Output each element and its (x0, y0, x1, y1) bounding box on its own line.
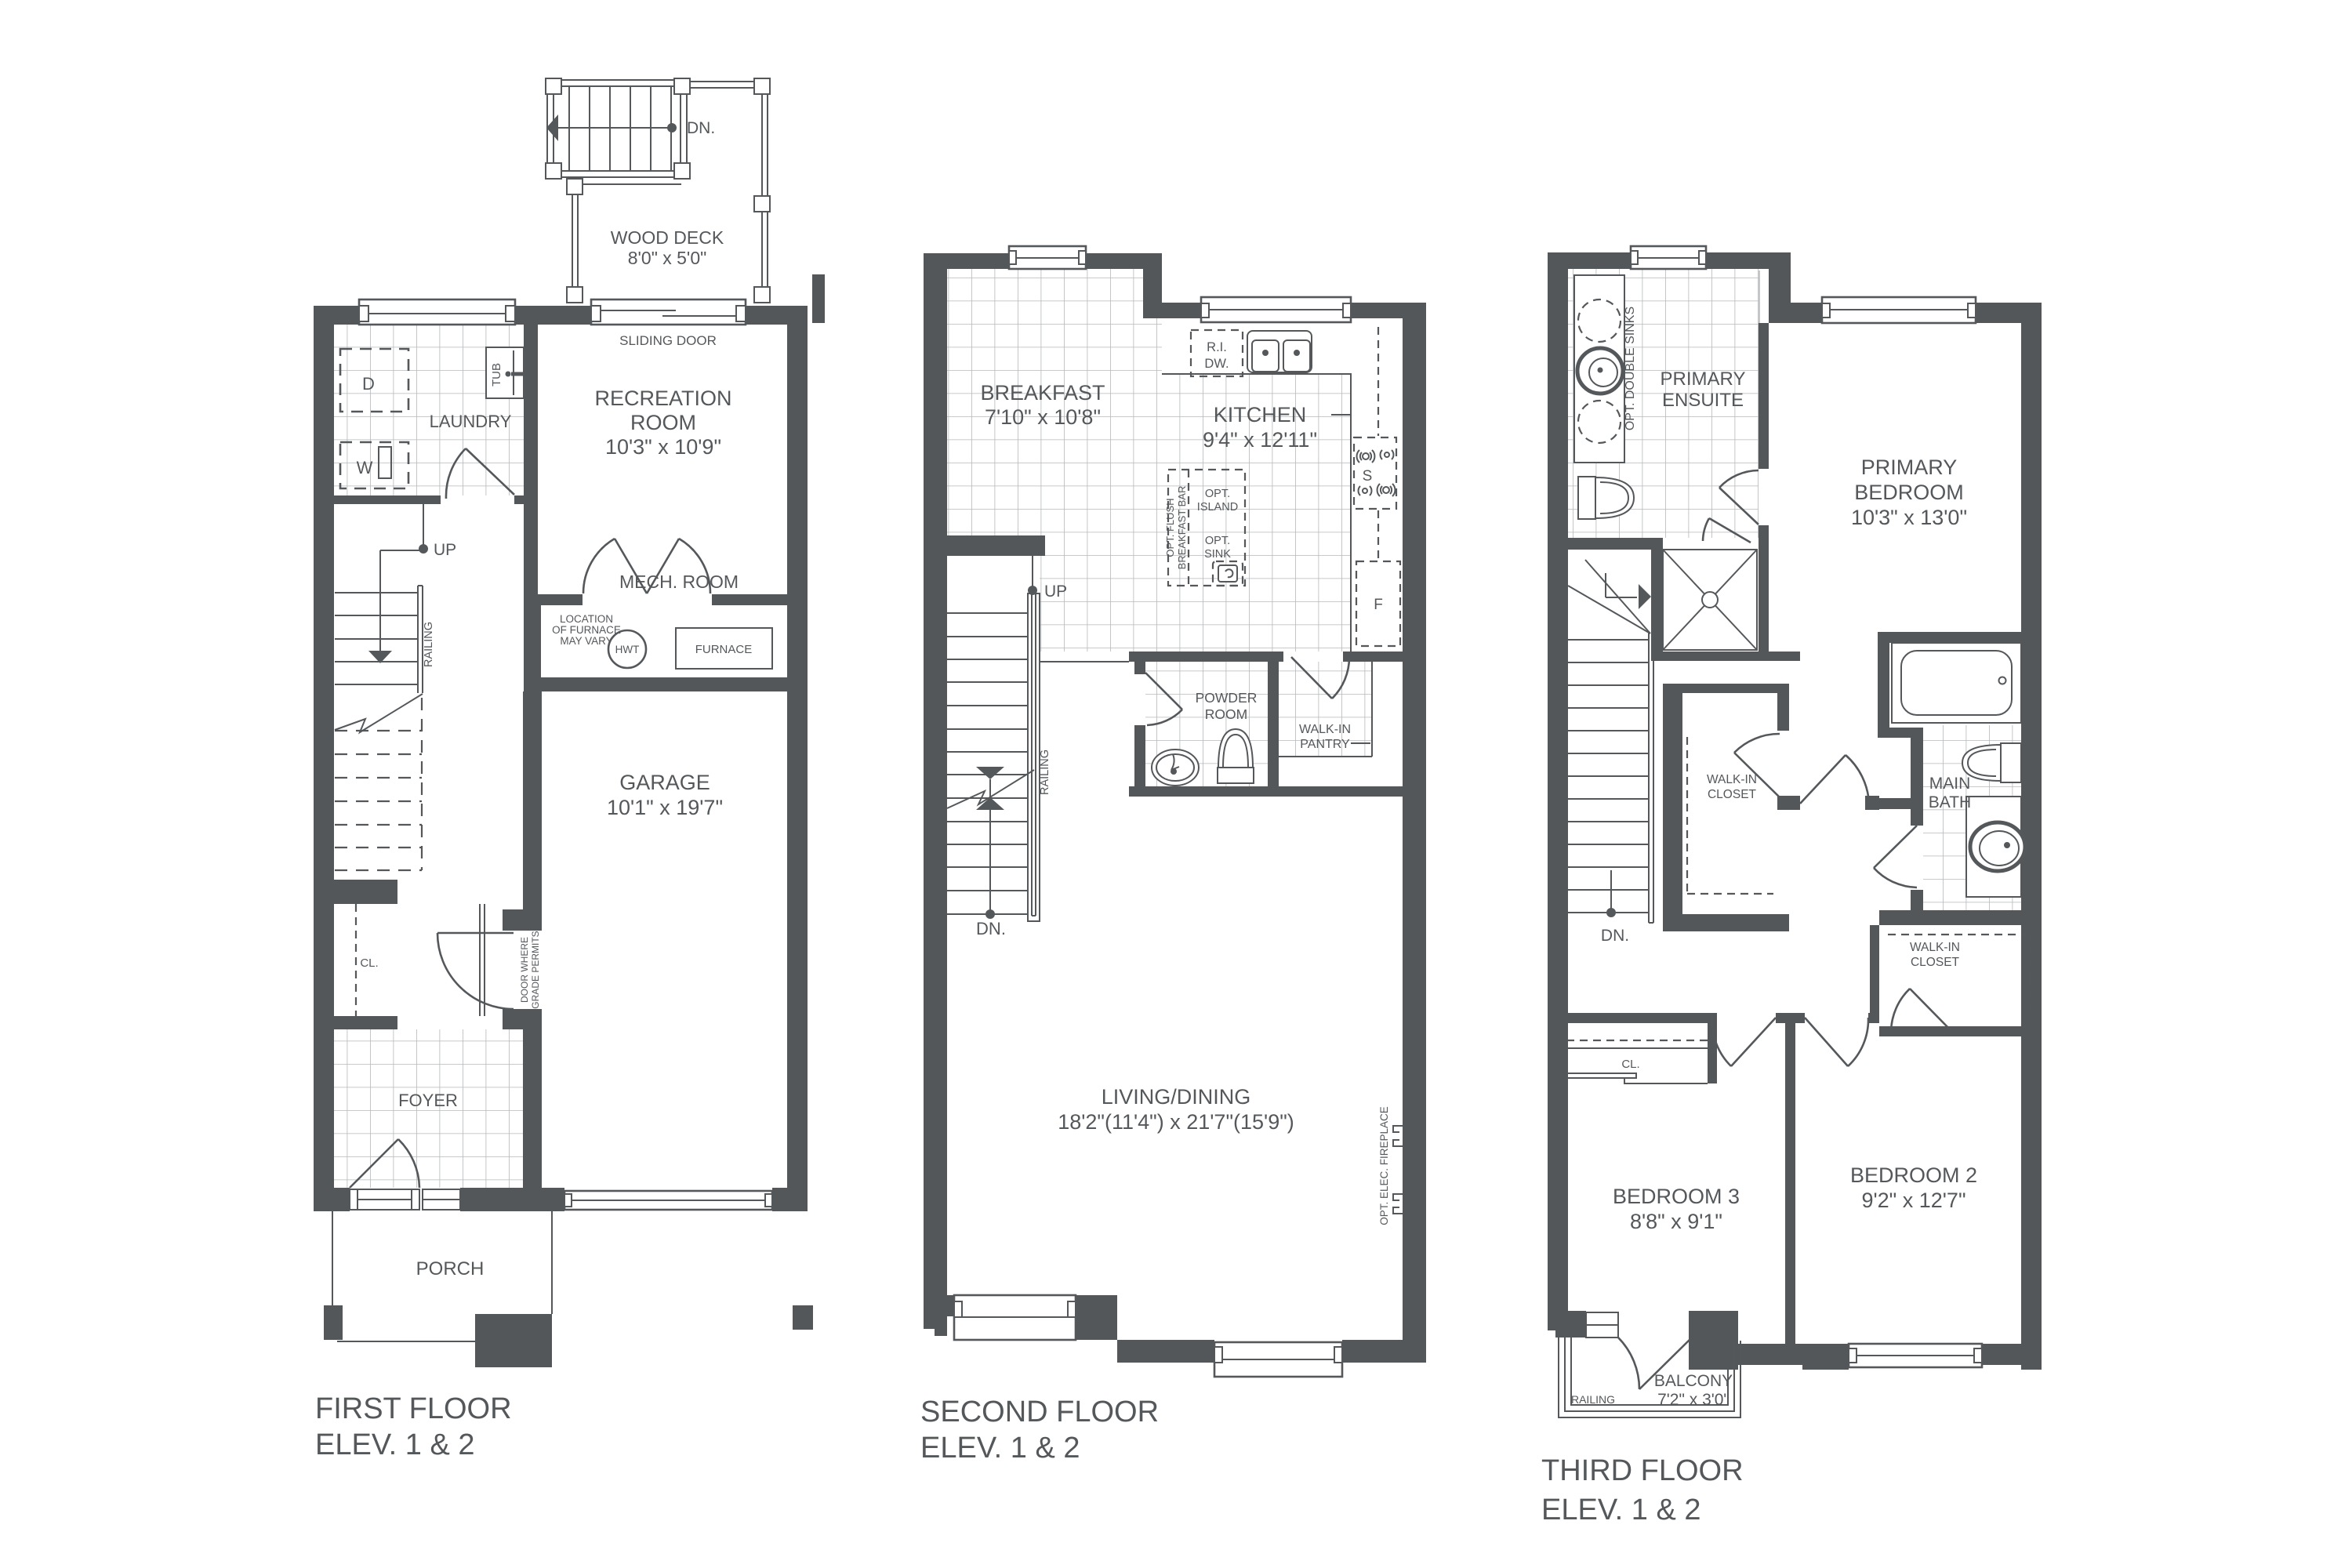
svg-text:CLOSET: CLOSET (1911, 956, 1960, 969)
svg-text:9'4" x 12'11": 9'4" x 12'11" (1203, 428, 1317, 452)
svg-text:OPT. FLUSH: OPT. FLUSH (1164, 498, 1176, 557)
svg-text:ROOM: ROOM (630, 411, 696, 434)
svg-text:LAUNDRY: LAUNDRY (430, 412, 512, 431)
svg-text:OPT.: OPT. (1205, 488, 1230, 500)
svg-text:RAILING: RAILING (423, 622, 435, 667)
svg-text:BALCONY: BALCONY (1654, 1372, 1733, 1390)
svg-text:OF FURNACE: OF FURNACE (552, 624, 621, 636)
svg-text:8'0" x 5'0": 8'0" x 5'0" (628, 248, 707, 268)
svg-text:W: W (357, 458, 373, 477)
svg-text:R.I.: R.I. (1207, 340, 1227, 354)
svg-text:LOCATION: LOCATION (560, 613, 613, 625)
svg-text:ELEV. 1 & 2: ELEV. 1 & 2 (920, 1432, 1080, 1465)
svg-text:RECREATION: RECREATION (594, 387, 731, 410)
svg-text:7'10" x 10'8": 7'10" x 10'8" (985, 405, 1101, 429)
svg-text:WALK-IN: WALK-IN (1299, 723, 1351, 736)
svg-text:PRIMARY: PRIMARY (1661, 368, 1746, 390)
svg-text:ISLAND: ISLAND (1197, 501, 1238, 514)
svg-text:DN.: DN. (976, 919, 1006, 938)
svg-text:BREAKFAST BAR: BREAKFAST BAR (1176, 486, 1188, 570)
svg-text:PANTRY: PANTRY (1300, 738, 1350, 751)
svg-text:MAY VARY: MAY VARY (560, 635, 612, 647)
svg-text:ROOM: ROOM (1205, 706, 1247, 722)
svg-text:BEDROOM 2: BEDROOM 2 (1850, 1163, 1977, 1187)
svg-text:DW.: DW. (1204, 357, 1229, 371)
svg-text:WOOD DECK: WOOD DECK (611, 227, 724, 248)
svg-text:WALK-IN: WALK-IN (1707, 773, 1757, 786)
svg-text:BREAKFAST: BREAKFAST (980, 381, 1105, 405)
svg-text:THIRD FLOOR: THIRD FLOOR (1541, 1454, 1744, 1487)
svg-text:7'2" x 3'0": 7'2" x 3'0" (1657, 1391, 1730, 1409)
svg-text:UP: UP (1044, 583, 1067, 601)
svg-text:F: F (1374, 597, 1383, 613)
svg-text:DN.: DN. (1601, 927, 1629, 945)
svg-text:S: S (1363, 468, 1373, 485)
svg-text:CL.: CL. (1621, 1058, 1639, 1071)
svg-text:MECH. ROOM: MECH. ROOM (619, 572, 739, 592)
svg-text:10'3" x 10'9": 10'3" x 10'9" (605, 435, 721, 459)
svg-text:9'2" x 12'7": 9'2" x 12'7" (1861, 1189, 1965, 1212)
svg-text:GRADE PERMITS: GRADE PERMITS (530, 931, 541, 1008)
svg-text:RAILING: RAILING (1039, 750, 1051, 795)
svg-text:10'1" x 19'7": 10'1" x 19'7" (607, 796, 723, 819)
svg-text:8'8" x 9'1": 8'8" x 9'1" (1630, 1210, 1722, 1233)
svg-text:ELEV. 1 & 2: ELEV. 1 & 2 (315, 1428, 475, 1461)
svg-text:SECOND FLOOR: SECOND FLOOR (920, 1396, 1159, 1428)
svg-text:FOYER: FOYER (398, 1091, 458, 1110)
svg-text:MAIN: MAIN (1929, 775, 1971, 793)
svg-text:WALK-IN: WALK-IN (1910, 941, 1960, 954)
svg-text:LIVING/DINING: LIVING/DINING (1102, 1085, 1251, 1109)
svg-text:RAILING: RAILING (1571, 1393, 1615, 1406)
svg-text:FURNACE: FURNACE (695, 643, 753, 656)
svg-text:SLIDING DOOR: SLIDING DOOR (619, 333, 717, 348)
svg-text:BATH: BATH (1929, 793, 1971, 811)
svg-text:SINK: SINK (1204, 548, 1231, 561)
svg-text:POWDER: POWDER (1196, 690, 1258, 706)
svg-text:BEDROOM: BEDROOM (1854, 481, 1964, 504)
svg-text:GARAGE: GARAGE (619, 771, 710, 794)
svg-text:KITCHEN: KITCHEN (1214, 403, 1307, 426)
svg-text:DOOR WHERE: DOOR WHERE (519, 937, 530, 1003)
svg-text:18'2"(11'4") x 21'7"(15'9"): 18'2"(11'4") x 21'7"(15'9") (1058, 1110, 1294, 1134)
svg-text:HWT: HWT (615, 644, 640, 655)
svg-text:DN.: DN. (687, 119, 715, 137)
svg-text:TUB: TUB (490, 363, 503, 387)
svg-text:ENSUITE: ENSUITE (1662, 390, 1744, 411)
svg-text:OPT. ELEC. FIREPLACE: OPT. ELEC. FIREPLACE (1378, 1106, 1390, 1225)
svg-text:UP: UP (434, 541, 456, 559)
svg-text:FIRST FLOOR: FIRST FLOOR (315, 1392, 512, 1425)
svg-text:CL.: CL. (360, 956, 378, 970)
svg-text:D: D (362, 374, 375, 394)
svg-text:PRIMARY: PRIMARY (1861, 456, 1958, 479)
svg-text:CLOSET: CLOSET (1708, 788, 1757, 801)
svg-text:OPT. DOUBLE SINKS: OPT. DOUBLE SINKS (1624, 307, 1637, 430)
svg-text:PORCH: PORCH (416, 1258, 485, 1279)
svg-text:OPT.: OPT. (1205, 535, 1230, 547)
svg-text:BEDROOM 3: BEDROOM 3 (1613, 1185, 1740, 1208)
svg-text:10'3" x 13'0": 10'3" x 13'0" (1851, 506, 1967, 529)
svg-text:ELEV. 1 & 2: ELEV. 1 & 2 (1541, 1494, 1701, 1526)
